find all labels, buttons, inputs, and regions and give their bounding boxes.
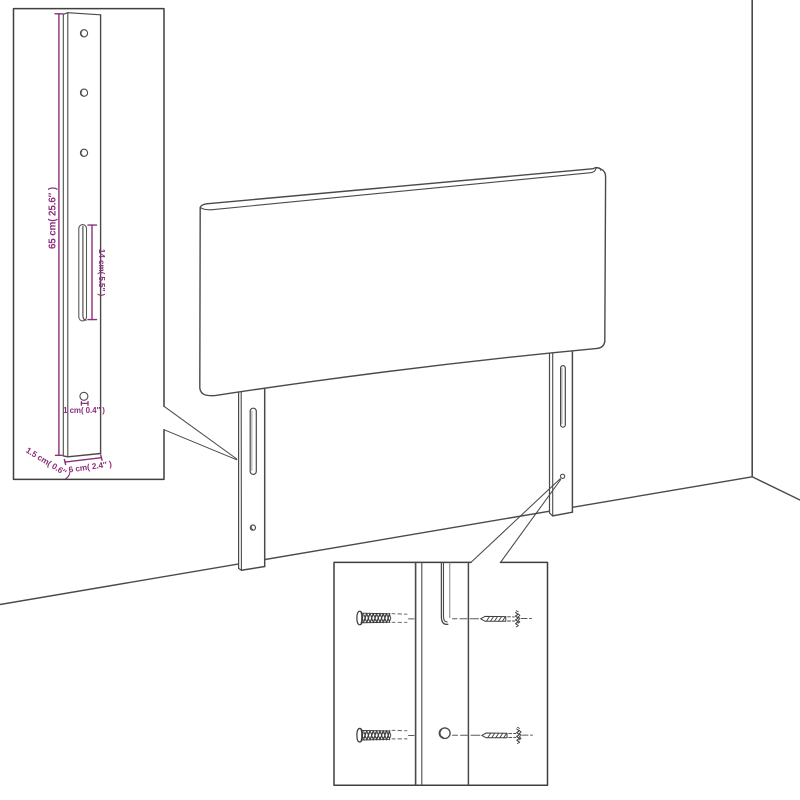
svg-text:14 cm( 5.5″ ): 14 cm( 5.5″ ) [97, 249, 106, 297]
svg-text:65 cm( 25.6″ ): 65 cm( 25.6″ ) [47, 187, 58, 249]
svg-text:1 cm( 0.4″ ): 1 cm( 0.4″ ) [63, 406, 105, 415]
